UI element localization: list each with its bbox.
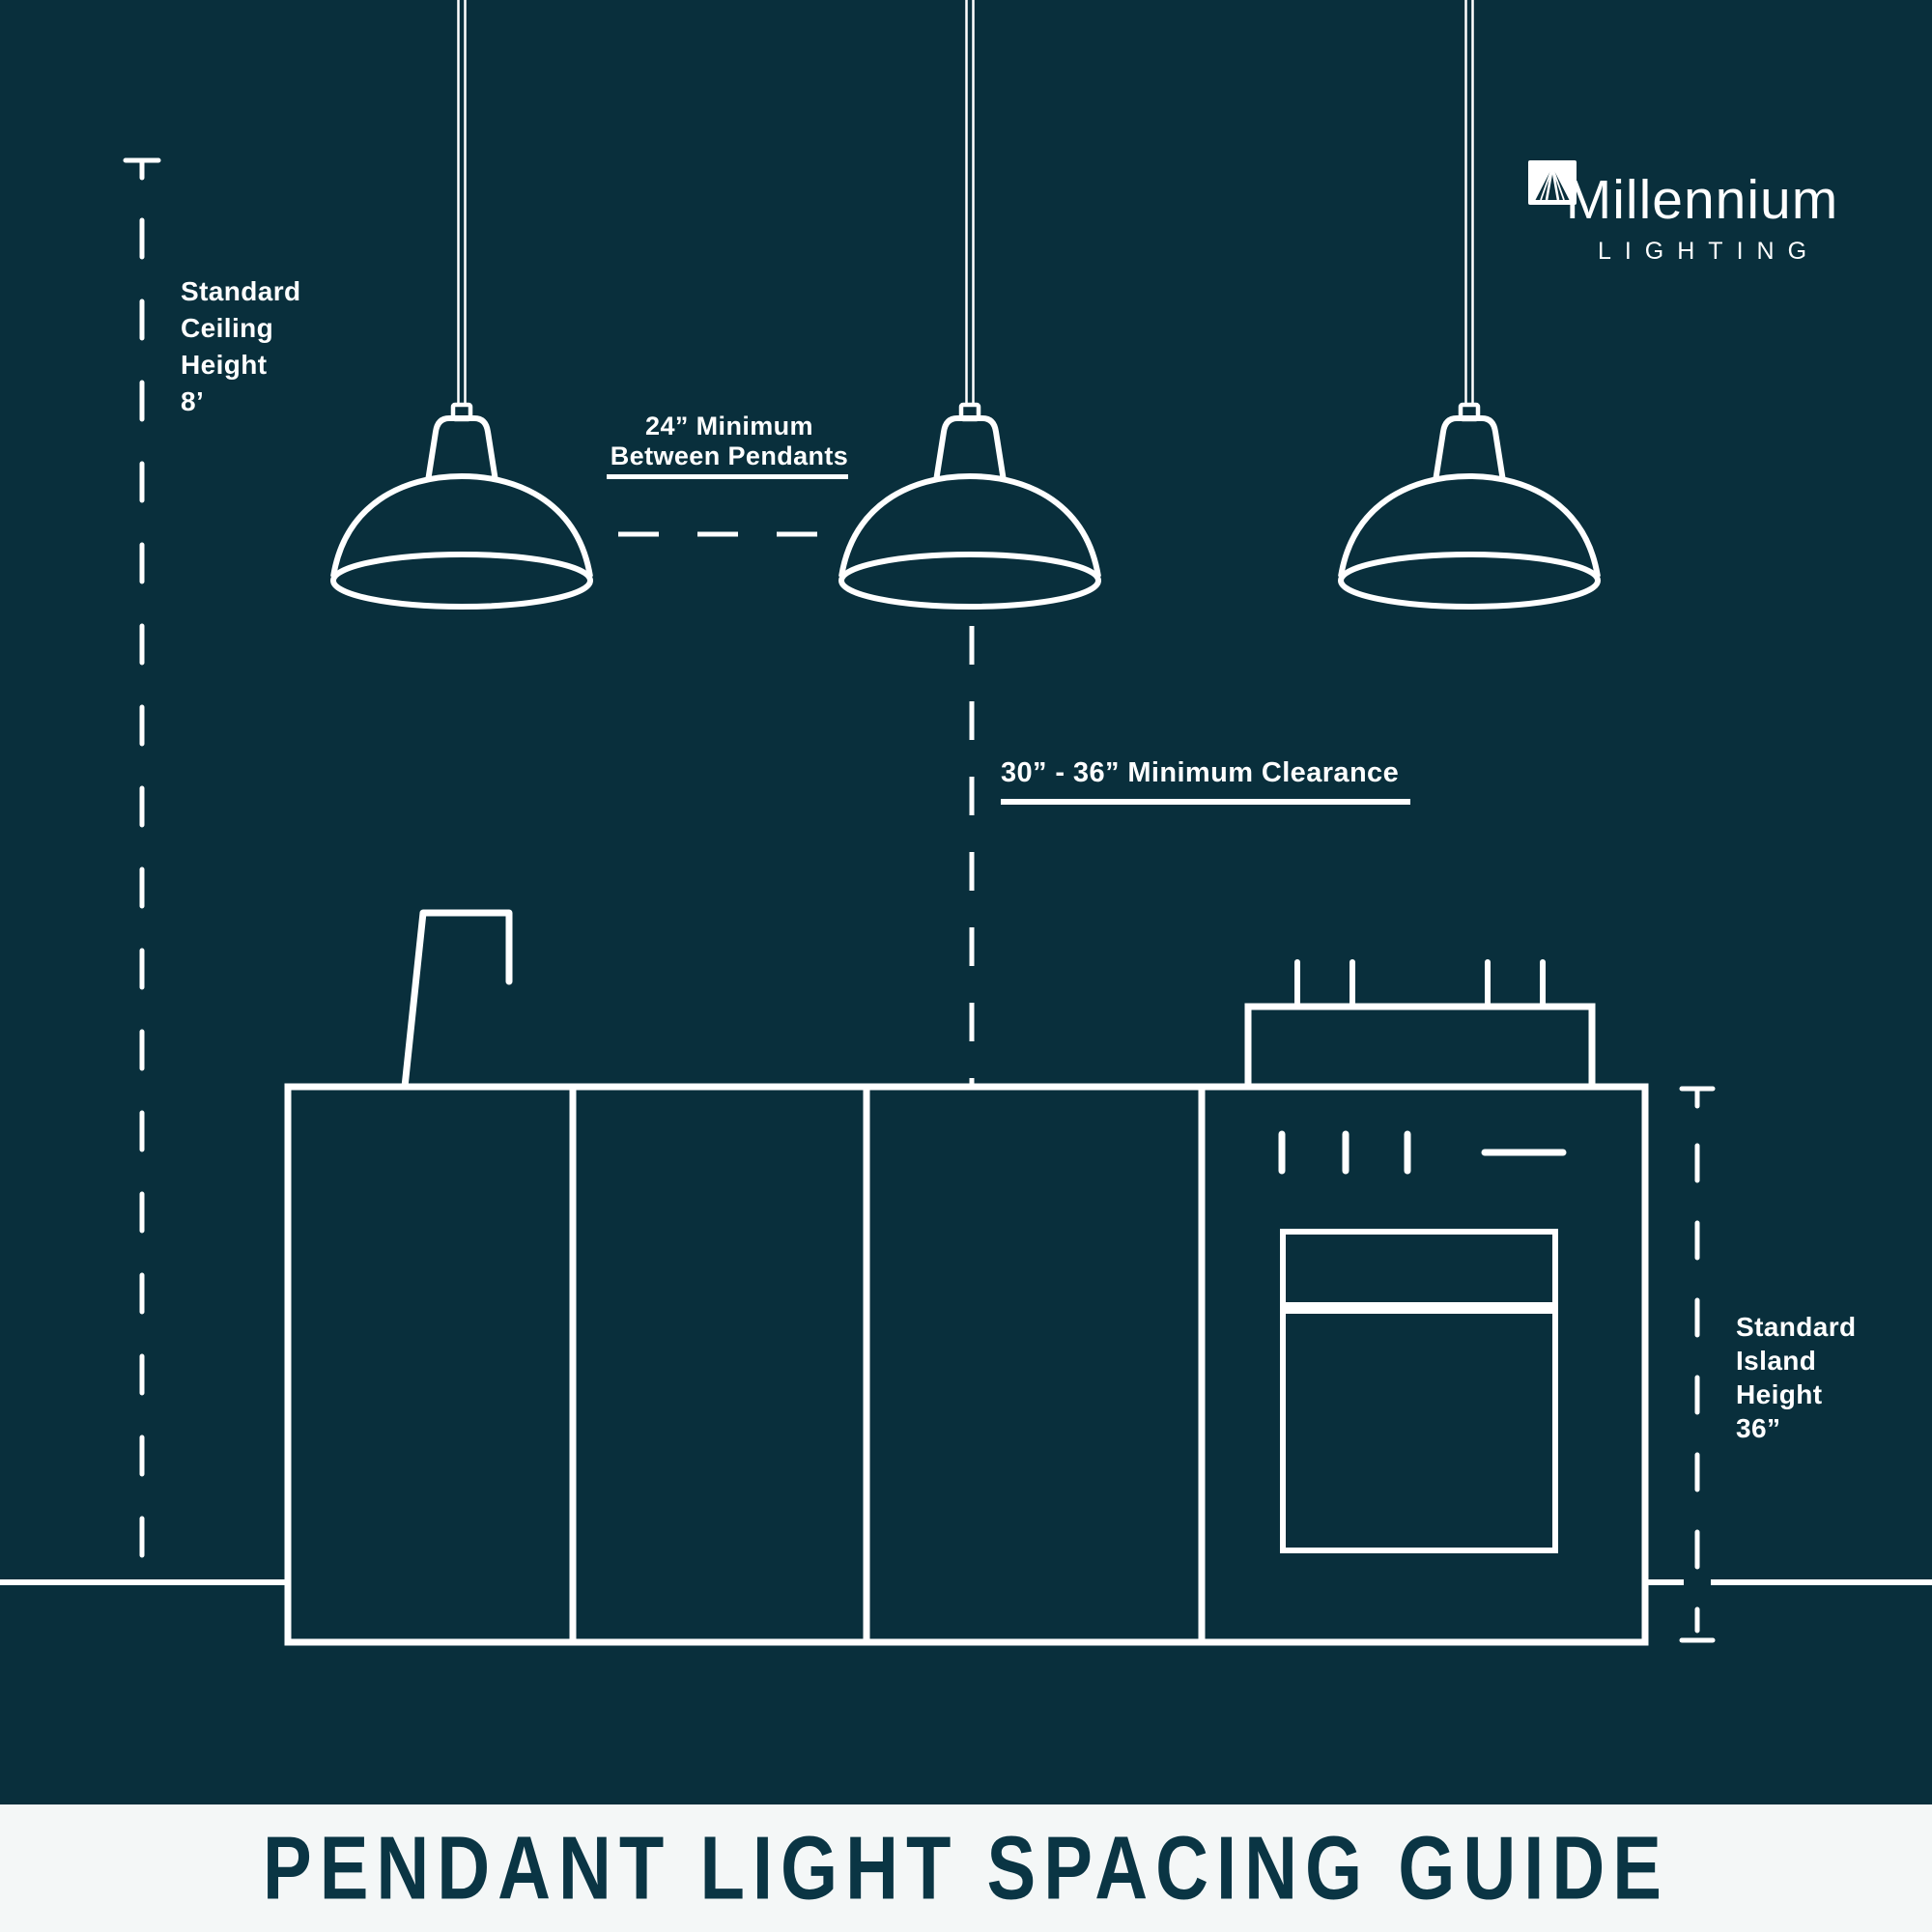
between-pendants-underline [607, 474, 848, 479]
oven-upper-panel [1283, 1232, 1555, 1305]
pendant-spacing-infographic: Standard Ceiling Height 8’ 24” Minimum B… [0, 0, 1932, 1932]
page-title: PENDANT LIGHT SPACING GUIDE [263, 1817, 1669, 1919]
pendant-light-2 [841, 0, 1098, 607]
kitchen-island [288, 1087, 1645, 1642]
logo-subtitle: LIGHTING [1528, 238, 1876, 266]
label-line: Standard [1736, 1310, 1857, 1344]
faucet [405, 913, 509, 1087]
clearance-underline [1001, 799, 1410, 805]
ceiling-height-dimension-line [126, 160, 158, 1575]
label-line: Island [1736, 1344, 1857, 1378]
clearance-label: 30” - 36” Minimum Clearance [1001, 757, 1399, 789]
oven-door [1283, 1311, 1555, 1550]
stove-knobs [1282, 1134, 1407, 1171]
logo-wordmark: Millennium [1528, 168, 1876, 232]
stove-backguard [1248, 1007, 1592, 1087]
label-line: Height [1736, 1378, 1857, 1411]
footer-bar: PENDANT LIGHT SPACING GUIDE [0, 1804, 1932, 1932]
label-line: Between Pendants [603, 441, 856, 471]
pendant-light-1 [333, 0, 590, 607]
island-body [288, 1087, 1645, 1642]
ceiling-height-label: Standard Ceiling Height 8’ [181, 273, 301, 420]
millennium-lighting-logo: Millennium LIGHTING [1528, 160, 1876, 266]
label-line: Standard [181, 273, 301, 310]
label-line: 8’ [181, 384, 301, 420]
stove [1248, 962, 1592, 1550]
label-line: Height [181, 347, 301, 384]
label-line: 24” Minimum [603, 412, 856, 441]
label-line: Ceiling [181, 310, 301, 347]
island-height-dimension-line [1682, 1089, 1713, 1640]
millennium-logo-mark-icon [1528, 160, 1577, 206]
stove-grate-prongs [1297, 962, 1543, 1007]
pendant-light-3 [1341, 0, 1598, 607]
island-height-label: Standard Island Height 36” [1736, 1310, 1857, 1445]
label-line: 36” [1736, 1411, 1857, 1445]
between-pendants-label: 24” Minimum Between Pendants [603, 412, 856, 471]
